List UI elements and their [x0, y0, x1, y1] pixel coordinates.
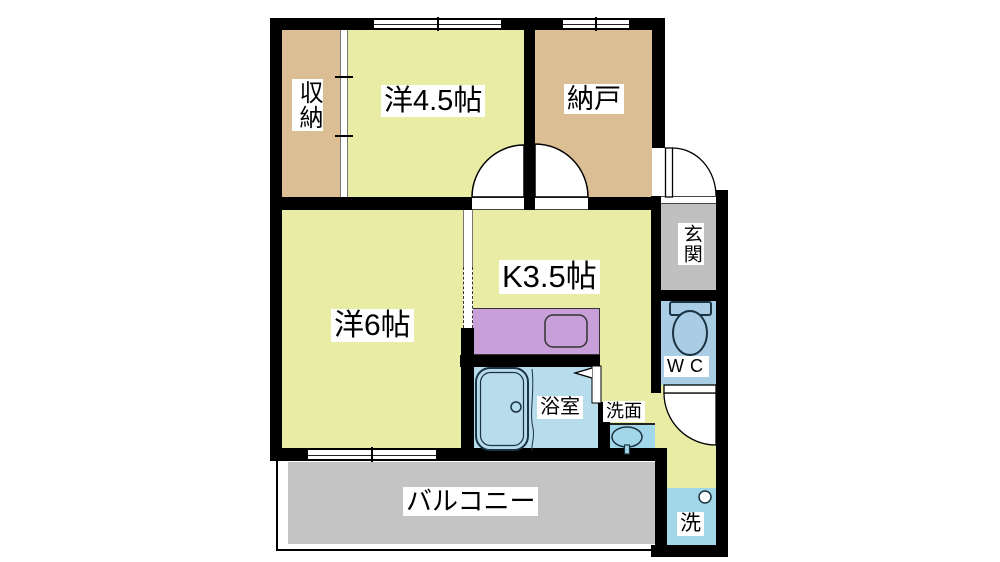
door-threshold — [535, 197, 588, 210]
floorplan-canvas: 収納 洋4.5帖 納戸 洋6帖 K3.5帖 玄関 WC 浴室 洗面 洗 バルコニ… — [0, 0, 1000, 562]
sliding-door-tick — [335, 76, 353, 78]
wall — [716, 190, 728, 557]
window — [307, 448, 437, 461]
window — [373, 18, 502, 30]
sliding-door-tick — [335, 135, 353, 137]
room-label-balcony: バルコニー — [403, 487, 538, 516]
room-label-wc: WC — [664, 356, 709, 377]
sliding-door — [340, 30, 348, 197]
room-label-bathroom: 浴室 — [537, 396, 583, 419]
door-threshold — [472, 197, 524, 210]
wall — [460, 355, 600, 367]
room-label-nando: 納戸 — [564, 84, 624, 114]
room-label-washroom: 洗面 — [603, 401, 645, 422]
sliding-door — [463, 210, 473, 267]
entrance-threshold — [661, 196, 716, 204]
entrance-door-leaf — [666, 148, 673, 197]
room-label-western-6: 洋6帖 — [331, 309, 414, 342]
kitchen-counter — [472, 308, 600, 355]
room-label-storage-top: 収納 — [292, 79, 323, 131]
wall — [524, 18, 535, 210]
wall — [652, 18, 665, 148]
wall — [651, 545, 728, 557]
wall — [270, 197, 660, 210]
wall — [270, 18, 282, 461]
sliding-door-pocket — [463, 267, 473, 328]
wall — [461, 328, 474, 461]
room-label-genkan: 玄関 — [678, 223, 704, 265]
room-label-kitchen: K3.5帖 — [499, 260, 600, 294]
room-label-laundry: 洗 — [677, 512, 704, 536]
window — [562, 18, 630, 30]
room-label-western-4-5: 洋4.5帖 — [381, 85, 485, 117]
wall — [655, 452, 667, 547]
door-swing-arc — [673, 148, 717, 196]
